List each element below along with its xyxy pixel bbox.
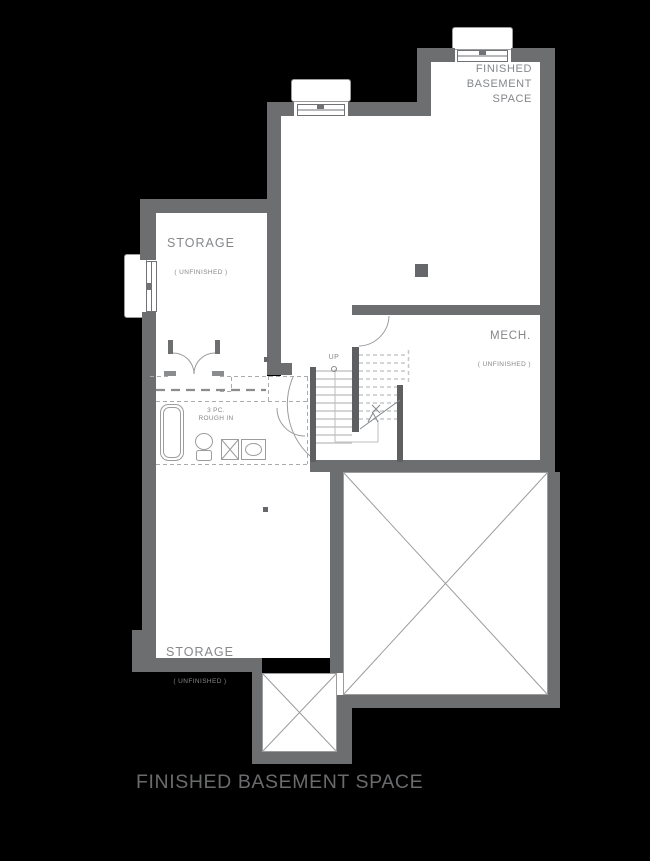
storage-bottom-sub: ( UNFINISHED ) [157, 678, 243, 686]
basement-floor-plan: FINISHED BASEMENT SPACE STORAGE ( UNFINI… [0, 0, 650, 861]
toilet-icon [196, 434, 213, 450]
stair-landing-outline [332, 367, 379, 443]
unexcavated-area-large [344, 473, 548, 695]
plan-linework [0, 0, 650, 861]
stair-treads-overhead-dashed [359, 350, 409, 419]
room-label-rough-in: 3 PC. ROUGH IN [189, 407, 243, 423]
door-arc-double-left [173, 353, 194, 374]
mech-name: MECH. [451, 330, 531, 342]
window-icon-left [146, 262, 157, 312]
mech-sub: ( UNFINISHED ) [451, 361, 531, 369]
door-arc-double-right [194, 353, 215, 374]
storage-top-name: STORAGE [158, 237, 244, 250]
storage-bottom-name: STORAGE [157, 646, 243, 659]
stair-treads-lower-run [316, 371, 352, 443]
room-label-storage-top: STORAGE ( UNFINISHED ) [158, 219, 244, 295]
room-label-finished-basement: FINISHED BASEMENT SPACE [442, 62, 532, 107]
door-arc-bath [277, 408, 305, 436]
unexcavated-area-small [263, 674, 337, 752]
window-icon-top-right [458, 50, 508, 62]
room-label-storage-bottom: STORAGE ( UNFINISHED ) [157, 628, 243, 704]
window-icon-top-middle [298, 104, 345, 116]
plan-title: FINISHED BASEMENT SPACE [136, 771, 423, 794]
stair-direction-arrow [360, 400, 400, 429]
door-arc-mech [359, 316, 389, 346]
room-label-mech: MECH. ( UNFINISHED ) [451, 312, 531, 387]
storage-top-sub: ( UNFINISHED ) [158, 269, 244, 277]
door-arcs [173, 316, 389, 456]
door-arc-hall [287, 377, 310, 456]
stair-up-label: UP [326, 354, 342, 362]
